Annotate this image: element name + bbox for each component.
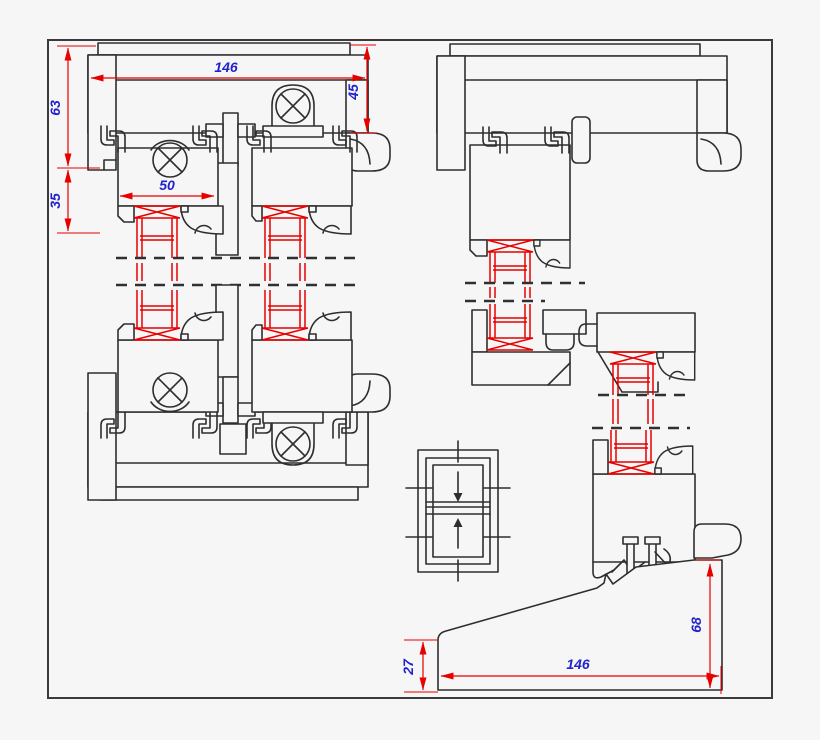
head-top-lip bbox=[98, 43, 350, 55]
sill-drip-block bbox=[694, 524, 741, 558]
dim-label: 63 bbox=[47, 100, 63, 116]
window-elevation-symbol bbox=[406, 441, 510, 581]
dim-label: 68 bbox=[688, 617, 704, 633]
glide-block bbox=[572, 117, 590, 163]
cad-drawing: 146 45 63 35 50 27 146 bbox=[0, 0, 820, 740]
jamb-left-leg bbox=[437, 56, 465, 170]
dim-label: 146 bbox=[214, 59, 238, 75]
dim-label: 45 bbox=[345, 84, 361, 101]
dim-label: 35 bbox=[47, 193, 63, 209]
sill-left-leg bbox=[88, 373, 116, 500]
dim-label: 27 bbox=[400, 658, 416, 676]
dim-label: 146 bbox=[566, 656, 590, 672]
jamb-top-lip bbox=[450, 44, 700, 56]
dim-label: 50 bbox=[159, 177, 175, 193]
sill-bottom-flange bbox=[100, 487, 358, 500]
head-left-leg bbox=[88, 55, 116, 170]
drawing-canvas: 146 45 63 35 50 27 146 bbox=[0, 0, 820, 740]
